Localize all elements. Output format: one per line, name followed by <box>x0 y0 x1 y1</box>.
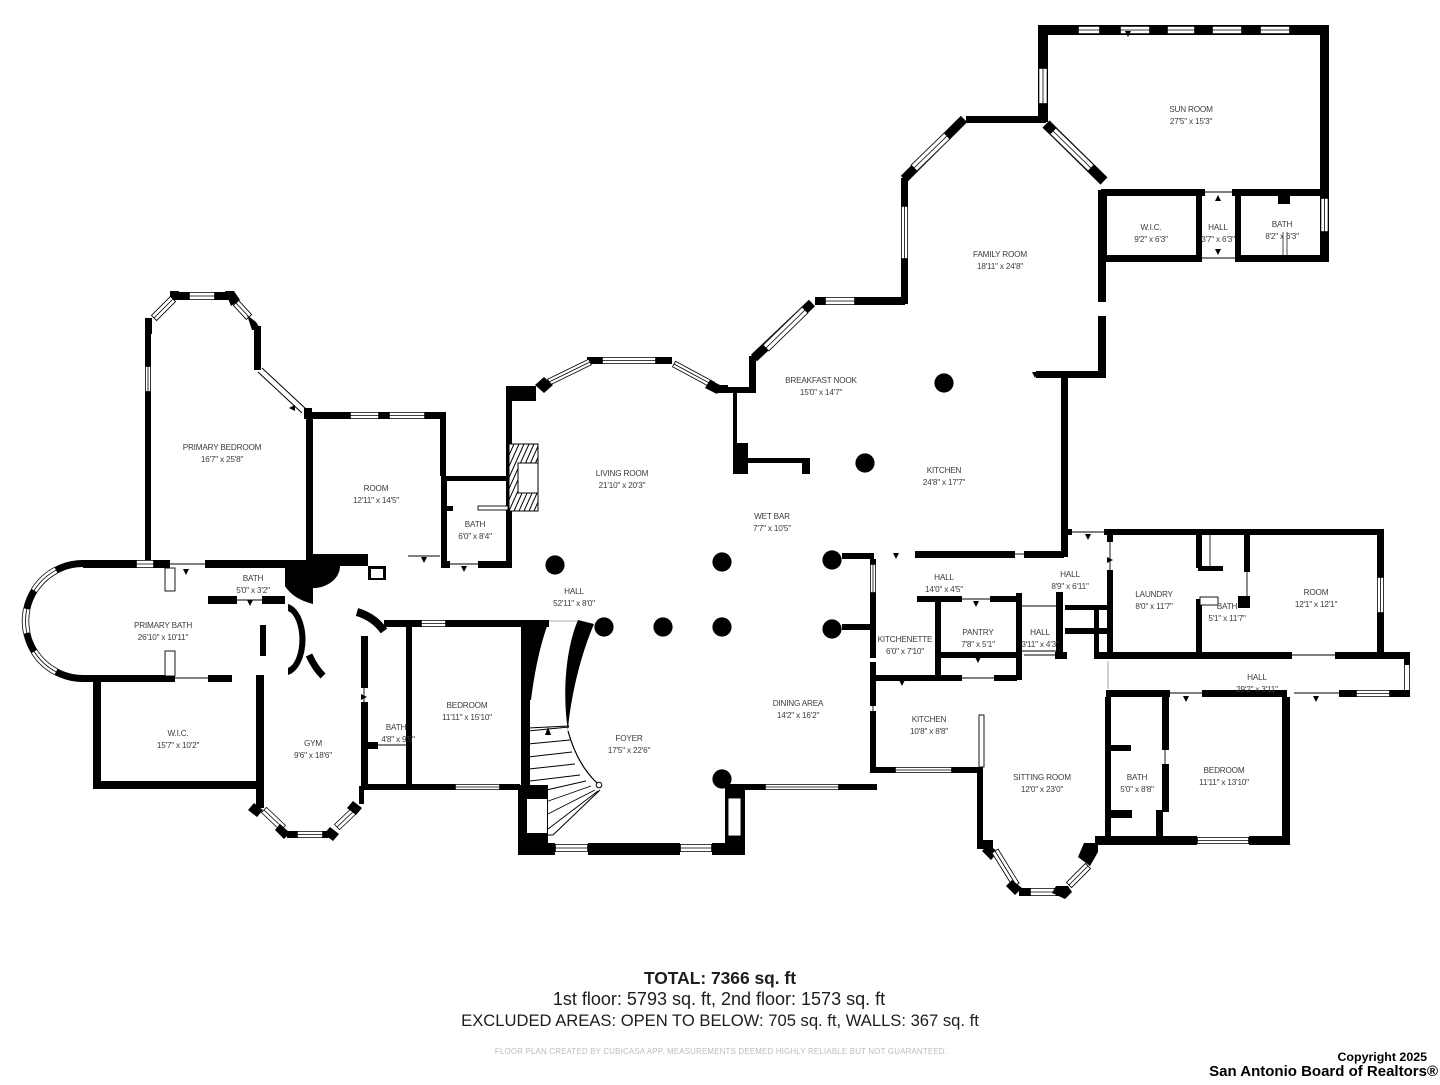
svg-text:3'7" x 6'3": 3'7" x 6'3" <box>1201 235 1235 244</box>
svg-text:PANTRY: PANTRY <box>962 628 994 637</box>
svg-text:18'11" x 24'8": 18'11" x 24'8" <box>977 262 1023 271</box>
svg-text:8'2" x 6'3": 8'2" x 6'3" <box>1265 232 1299 241</box>
svg-text:LAUNDRY: LAUNDRY <box>1135 590 1173 599</box>
svg-text:17'5" x 22'6": 17'5" x 22'6" <box>608 746 651 755</box>
svg-text:BATH: BATH <box>465 520 486 529</box>
svg-text:KITCHEN: KITCHEN <box>912 715 947 724</box>
svg-text:KITCHENETTE: KITCHENETTE <box>878 635 933 644</box>
svg-text:11'11" x 13'10": 11'11" x 13'10" <box>1199 778 1249 787</box>
svg-text:PRIMARY BATH: PRIMARY BATH <box>134 621 192 630</box>
svg-text:29'2" x 3'11": 29'2" x 3'11" <box>1236 685 1278 694</box>
svg-text:KITCHEN: KITCHEN <box>927 466 962 475</box>
svg-text:SUN ROOM: SUN ROOM <box>1169 105 1213 114</box>
svg-text:FLOOR PLAN CREATED BY CUBICASA: FLOOR PLAN CREATED BY CUBICASA APP. MEAS… <box>495 1047 947 1056</box>
svg-text:7'7" x 10'5": 7'7" x 10'5" <box>753 524 791 533</box>
svg-text:15'0" x 14'7": 15'0" x 14'7" <box>800 388 843 397</box>
svg-text:BEDROOM: BEDROOM <box>447 701 488 710</box>
svg-text:1st floor: 5793 sq. ft, 2nd fl: 1st floor: 5793 sq. ft, 2nd floor: 1573 … <box>553 989 885 1009</box>
svg-text:HALL: HALL <box>1208 223 1228 232</box>
svg-text:5'0" x 3'2": 5'0" x 3'2" <box>236 586 270 595</box>
svg-text:8'0" x 11'7": 8'0" x 11'7" <box>1135 602 1173 611</box>
svg-text:BATH: BATH <box>1272 220 1293 229</box>
svg-text:FOYER: FOYER <box>615 734 642 743</box>
svg-text:12'0" x 23'0": 12'0" x 23'0" <box>1021 785 1064 794</box>
svg-text:BATH: BATH <box>386 723 407 732</box>
svg-text:8'9" x 6'11": 8'9" x 6'11" <box>1051 582 1089 591</box>
svg-text:4'8" x 9'5": 4'8" x 9'5" <box>381 735 415 744</box>
svg-text:7'8" x 5'1": 7'8" x 5'1" <box>961 640 995 649</box>
svg-text:BATH: BATH <box>1217 602 1238 611</box>
svg-text:HALL: HALL <box>1247 673 1267 682</box>
svg-text:9'2" x 6'3": 9'2" x 6'3" <box>1134 235 1168 244</box>
svg-text:BREAKFAST NOOK: BREAKFAST NOOK <box>785 376 857 385</box>
svg-text:52'11" x 8'0": 52'11" x 8'0" <box>553 599 595 608</box>
svg-text:3'11" x 4'3": 3'11" x 4'3" <box>1021 640 1059 649</box>
svg-text:12'1" x 12'1": 12'1" x 12'1" <box>1295 600 1338 609</box>
svg-text:FAMILY ROOM: FAMILY ROOM <box>973 250 1027 259</box>
svg-text:GYM: GYM <box>304 739 322 748</box>
svg-text:10'8" x 8'8": 10'8" x 8'8" <box>910 727 948 736</box>
svg-text:27'5" x 15'3": 27'5" x 15'3" <box>1170 117 1213 126</box>
svg-text:TOTAL: 7366 sq. ft: TOTAL: 7366 sq. ft <box>644 968 796 988</box>
svg-text:5'1" x 11'7": 5'1" x 11'7" <box>1208 614 1246 623</box>
svg-text:9'6" x 18'6": 9'6" x 18'6" <box>294 751 332 760</box>
svg-text:San Antonio Board of Realtors®: San Antonio Board of Realtors® <box>1209 1063 1438 1080</box>
svg-text:ROOM: ROOM <box>364 484 389 493</box>
svg-text:26'10" x 10'11": 26'10" x 10'11" <box>138 633 189 642</box>
svg-text:HALL: HALL <box>934 573 954 582</box>
svg-text:Copyright 2025: Copyright 2025 <box>1337 1050 1427 1064</box>
svg-text:14'0" x 4'5": 14'0" x 4'5" <box>925 585 963 594</box>
svg-text:21'10" x 20'3": 21'10" x 20'3" <box>599 481 646 490</box>
svg-text:11'11" x 15'10": 11'11" x 15'10" <box>442 713 492 722</box>
svg-text:6'0" x 8'4": 6'0" x 8'4" <box>458 532 492 541</box>
svg-text:W.I.C.: W.I.C. <box>167 729 188 738</box>
svg-text:HALL: HALL <box>1060 570 1080 579</box>
svg-text:SITTING ROOM: SITTING ROOM <box>1013 773 1071 782</box>
svg-text:HALL: HALL <box>1030 628 1050 637</box>
svg-text:W.I.C.: W.I.C. <box>1140 223 1161 232</box>
svg-text:DINING AREA: DINING AREA <box>773 699 824 708</box>
svg-text:15'7" x 10'2": 15'7" x 10'2" <box>157 741 200 750</box>
svg-text:BATH: BATH <box>243 574 264 583</box>
svg-text:5'0" x 8'8": 5'0" x 8'8" <box>1120 785 1154 794</box>
svg-text:12'11" x 14'5": 12'11" x 14'5" <box>353 496 399 505</box>
svg-text:6'0" x 7'10": 6'0" x 7'10" <box>886 647 924 656</box>
svg-text:HALL: HALL <box>564 587 584 596</box>
svg-text:LIVING ROOM: LIVING ROOM <box>596 469 649 478</box>
svg-text:PRIMARY BEDROOM: PRIMARY BEDROOM <box>183 443 262 452</box>
svg-text:EXCLUDED AREAS: OPEN TO BELOW:: EXCLUDED AREAS: OPEN TO BELOW: 705 sq. f… <box>461 1011 979 1030</box>
svg-text:BATH: BATH <box>1127 773 1148 782</box>
svg-text:ROOM: ROOM <box>1304 588 1329 597</box>
svg-text:BEDROOM: BEDROOM <box>1204 766 1245 775</box>
svg-text:24'8" x 17'7": 24'8" x 17'7" <box>923 478 966 487</box>
svg-text:WET BAR: WET BAR <box>754 512 790 521</box>
svg-text:14'2" x 16'2": 14'2" x 16'2" <box>777 711 820 720</box>
svg-text:16'7" x 25'8": 16'7" x 25'8" <box>201 455 244 464</box>
